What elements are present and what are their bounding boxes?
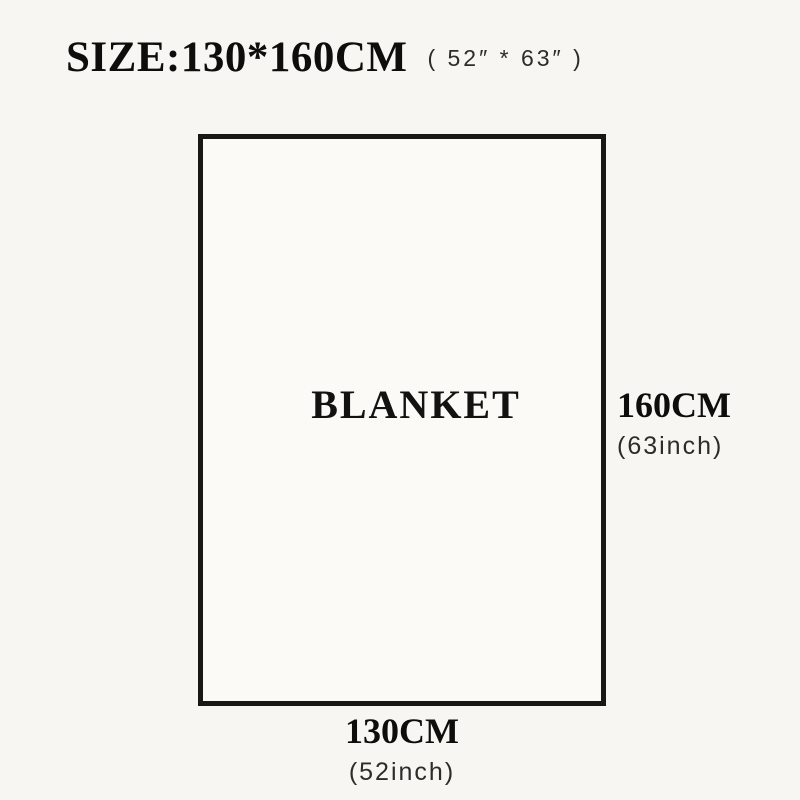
size-title-inches: ( 52″ * 63″ ) [427, 45, 583, 70]
blanket-outline: BLANKET [198, 134, 606, 706]
height-dimension: 160CM (63inch) [617, 386, 731, 460]
height-inch-value: (63inch) [617, 433, 731, 461]
title: SIZE:130*160CM ( 52″ * 63″ ) [66, 36, 584, 79]
width-inch-value: (52inch) [198, 759, 606, 787]
width-cm-value: 130CM [198, 712, 606, 752]
product-label: BLANKET [311, 381, 521, 428]
size-title-cm: SIZE:130*160CM [66, 36, 407, 79]
height-cm-value: 160CM [617, 386, 731, 426]
width-dimension: 130CM (52inch) [198, 712, 606, 786]
